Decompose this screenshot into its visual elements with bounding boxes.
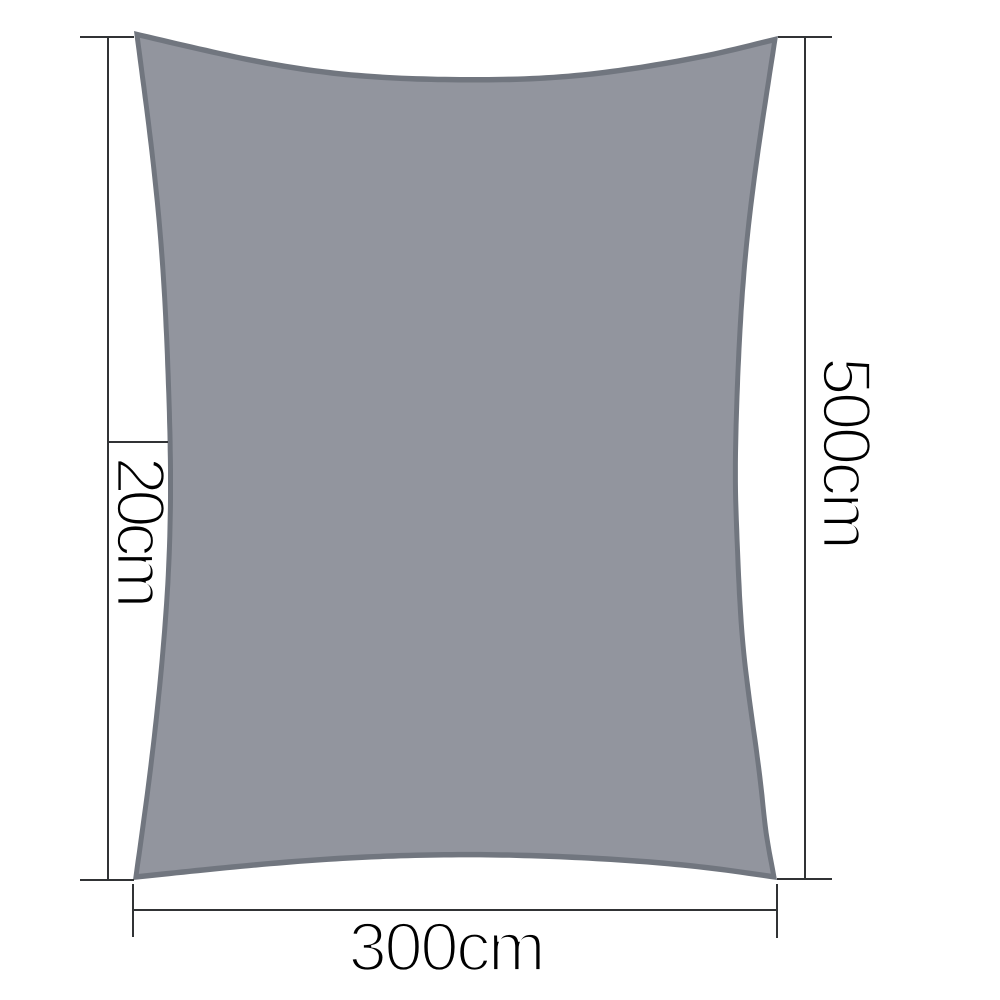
svg-text:500cm: 500cm (808, 357, 885, 550)
svg-text:300cm: 300cm (349, 909, 546, 986)
svg-text:20cm: 20cm (102, 457, 179, 609)
